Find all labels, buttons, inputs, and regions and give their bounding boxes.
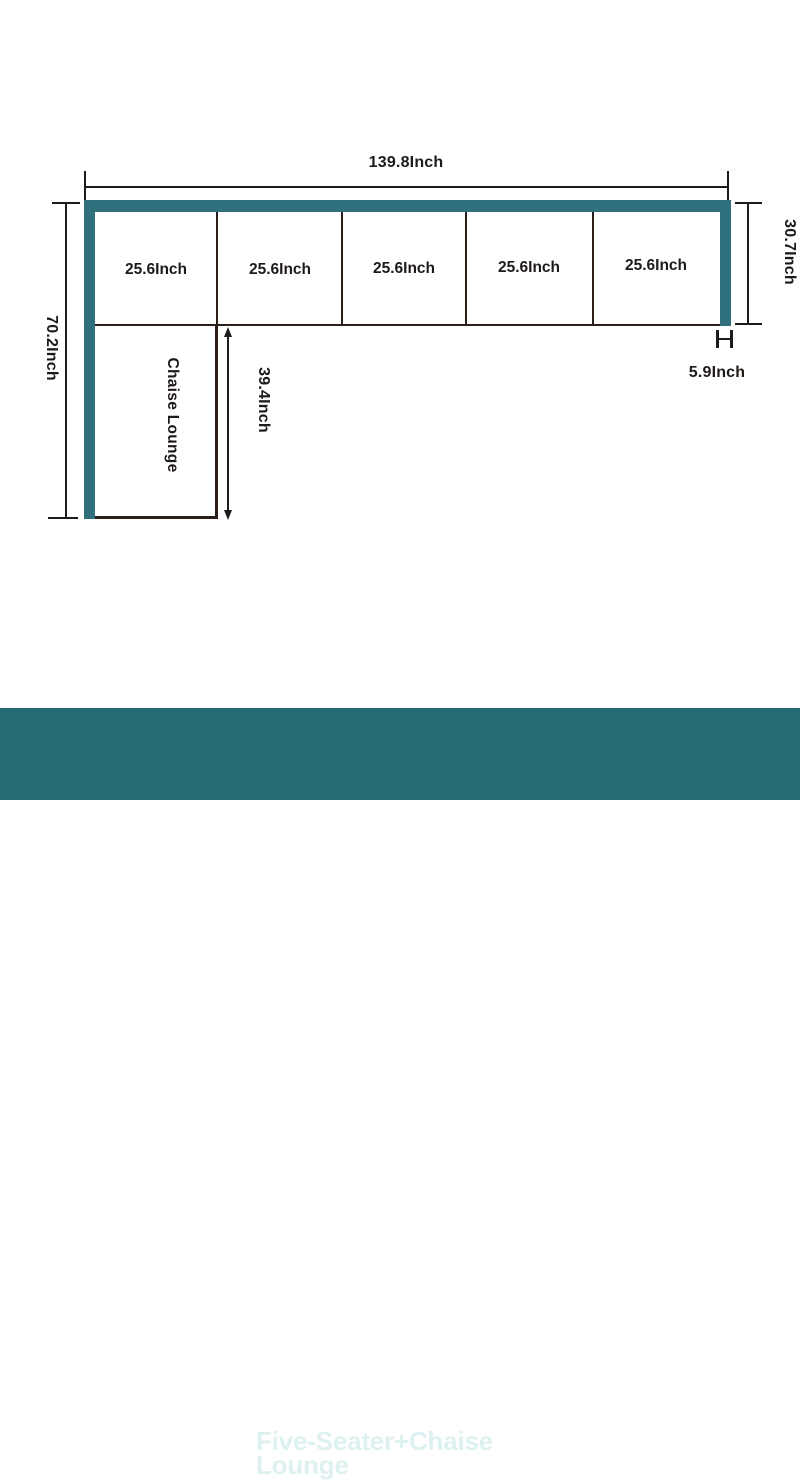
right-dimension-tick-top bbox=[735, 202, 762, 204]
chaise-length-arrowhead-top bbox=[224, 327, 232, 337]
chaise-right-border bbox=[215, 324, 218, 519]
sofa-backrest-bar bbox=[84, 200, 731, 212]
chaise-length-arrow-line bbox=[227, 332, 229, 512]
right-dimension-tick-bottom bbox=[735, 323, 762, 325]
seat-divider-1 bbox=[216, 212, 218, 326]
sofa-right-arm-bar bbox=[720, 200, 731, 326]
chaise-length-label: 39.4Inch bbox=[254, 367, 272, 433]
seat-depth-label: 30.7Inch bbox=[780, 219, 798, 285]
top-dimension-tick-left bbox=[84, 171, 86, 202]
sofa-dimension-diagram: 139.8Inch 70.2Inch 30.7Inch 25.6Inch 25.… bbox=[0, 0, 800, 708]
overall-width-label: 139.8Inch bbox=[369, 154, 444, 172]
left-dimension-tick-top bbox=[52, 202, 80, 204]
right-dimension-line bbox=[747, 203, 749, 325]
top-dimension-line bbox=[85, 186, 728, 188]
arm-width-label: 5.9Inch bbox=[689, 364, 746, 382]
arm-width-bracket-bar bbox=[716, 338, 733, 340]
seat-divider-4 bbox=[592, 212, 594, 326]
seat-divider-3 bbox=[465, 212, 467, 326]
product-title: Five-Seater+Chaise Lounge bbox=[256, 1430, 508, 1477]
seat-3-width-label: 25.6Inch bbox=[373, 260, 435, 278]
seat-divider-2 bbox=[341, 212, 343, 326]
left-dimension-line bbox=[65, 203, 67, 519]
left-dimension-tick-bottom bbox=[48, 517, 78, 519]
seat-front-line bbox=[95, 324, 720, 326]
seat-5-width-label: 25.6Inch bbox=[625, 257, 687, 275]
seat-2-width-label: 25.6Inch bbox=[249, 261, 311, 279]
chaise-length-arrowhead-bottom bbox=[224, 510, 232, 520]
seat-4-width-label: 25.6Inch bbox=[498, 259, 560, 277]
product-banner: Five-Seater+Chaise Lounge bbox=[0, 708, 800, 800]
seat-1-width-label: 25.6Inch bbox=[125, 261, 187, 279]
sofa-left-arm-bar bbox=[84, 200, 95, 519]
chaise-lounge-label: Chaise Lounge bbox=[163, 358, 181, 473]
overall-depth-label: 70.2Inch bbox=[42, 315, 60, 381]
top-dimension-tick-right bbox=[727, 171, 729, 202]
chaise-bottom-border bbox=[95, 516, 218, 519]
